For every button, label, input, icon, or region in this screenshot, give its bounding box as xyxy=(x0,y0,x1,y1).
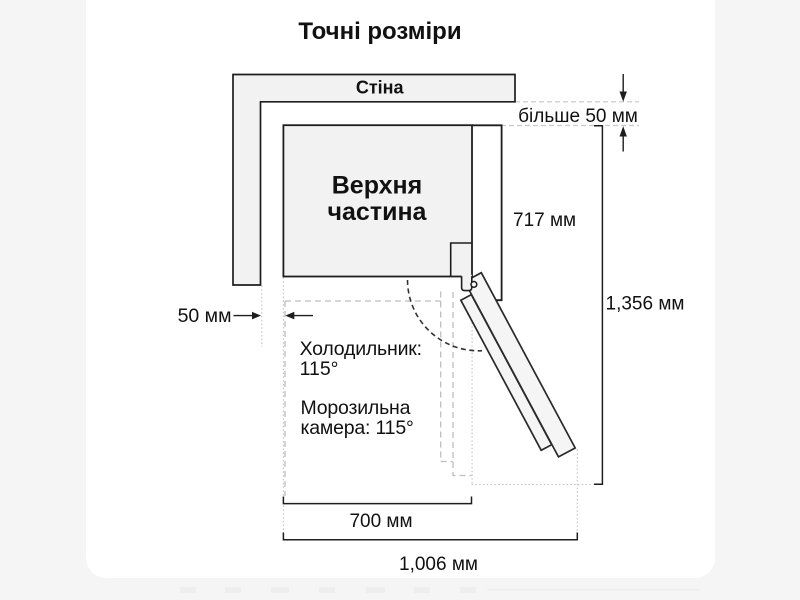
svg-text:717 мм: 717 мм xyxy=(513,210,576,231)
svg-text:Верхня: Верхня xyxy=(332,172,423,200)
svg-text:700 мм: 700 мм xyxy=(349,511,412,532)
svg-text:50 мм: 50 мм xyxy=(178,305,232,327)
svg-text:більше 50 мм: більше 50 мм xyxy=(518,106,638,127)
svg-text:камера: 115°: камера: 115° xyxy=(301,417,414,439)
svg-text:1,356 мм: 1,356 мм xyxy=(606,294,685,315)
svg-text:Холодильник:: Холодильник: xyxy=(300,338,422,360)
svg-text:Стіна: Стіна xyxy=(356,78,405,98)
svg-text:Точні розміри: Точні розміри xyxy=(298,18,461,45)
svg-text:частина: частина xyxy=(328,198,428,226)
svg-text:Морозильна: Морозильна xyxy=(301,397,411,419)
svg-text:1,006 мм: 1,006 мм xyxy=(399,554,478,575)
svg-text:115°: 115° xyxy=(300,358,339,380)
